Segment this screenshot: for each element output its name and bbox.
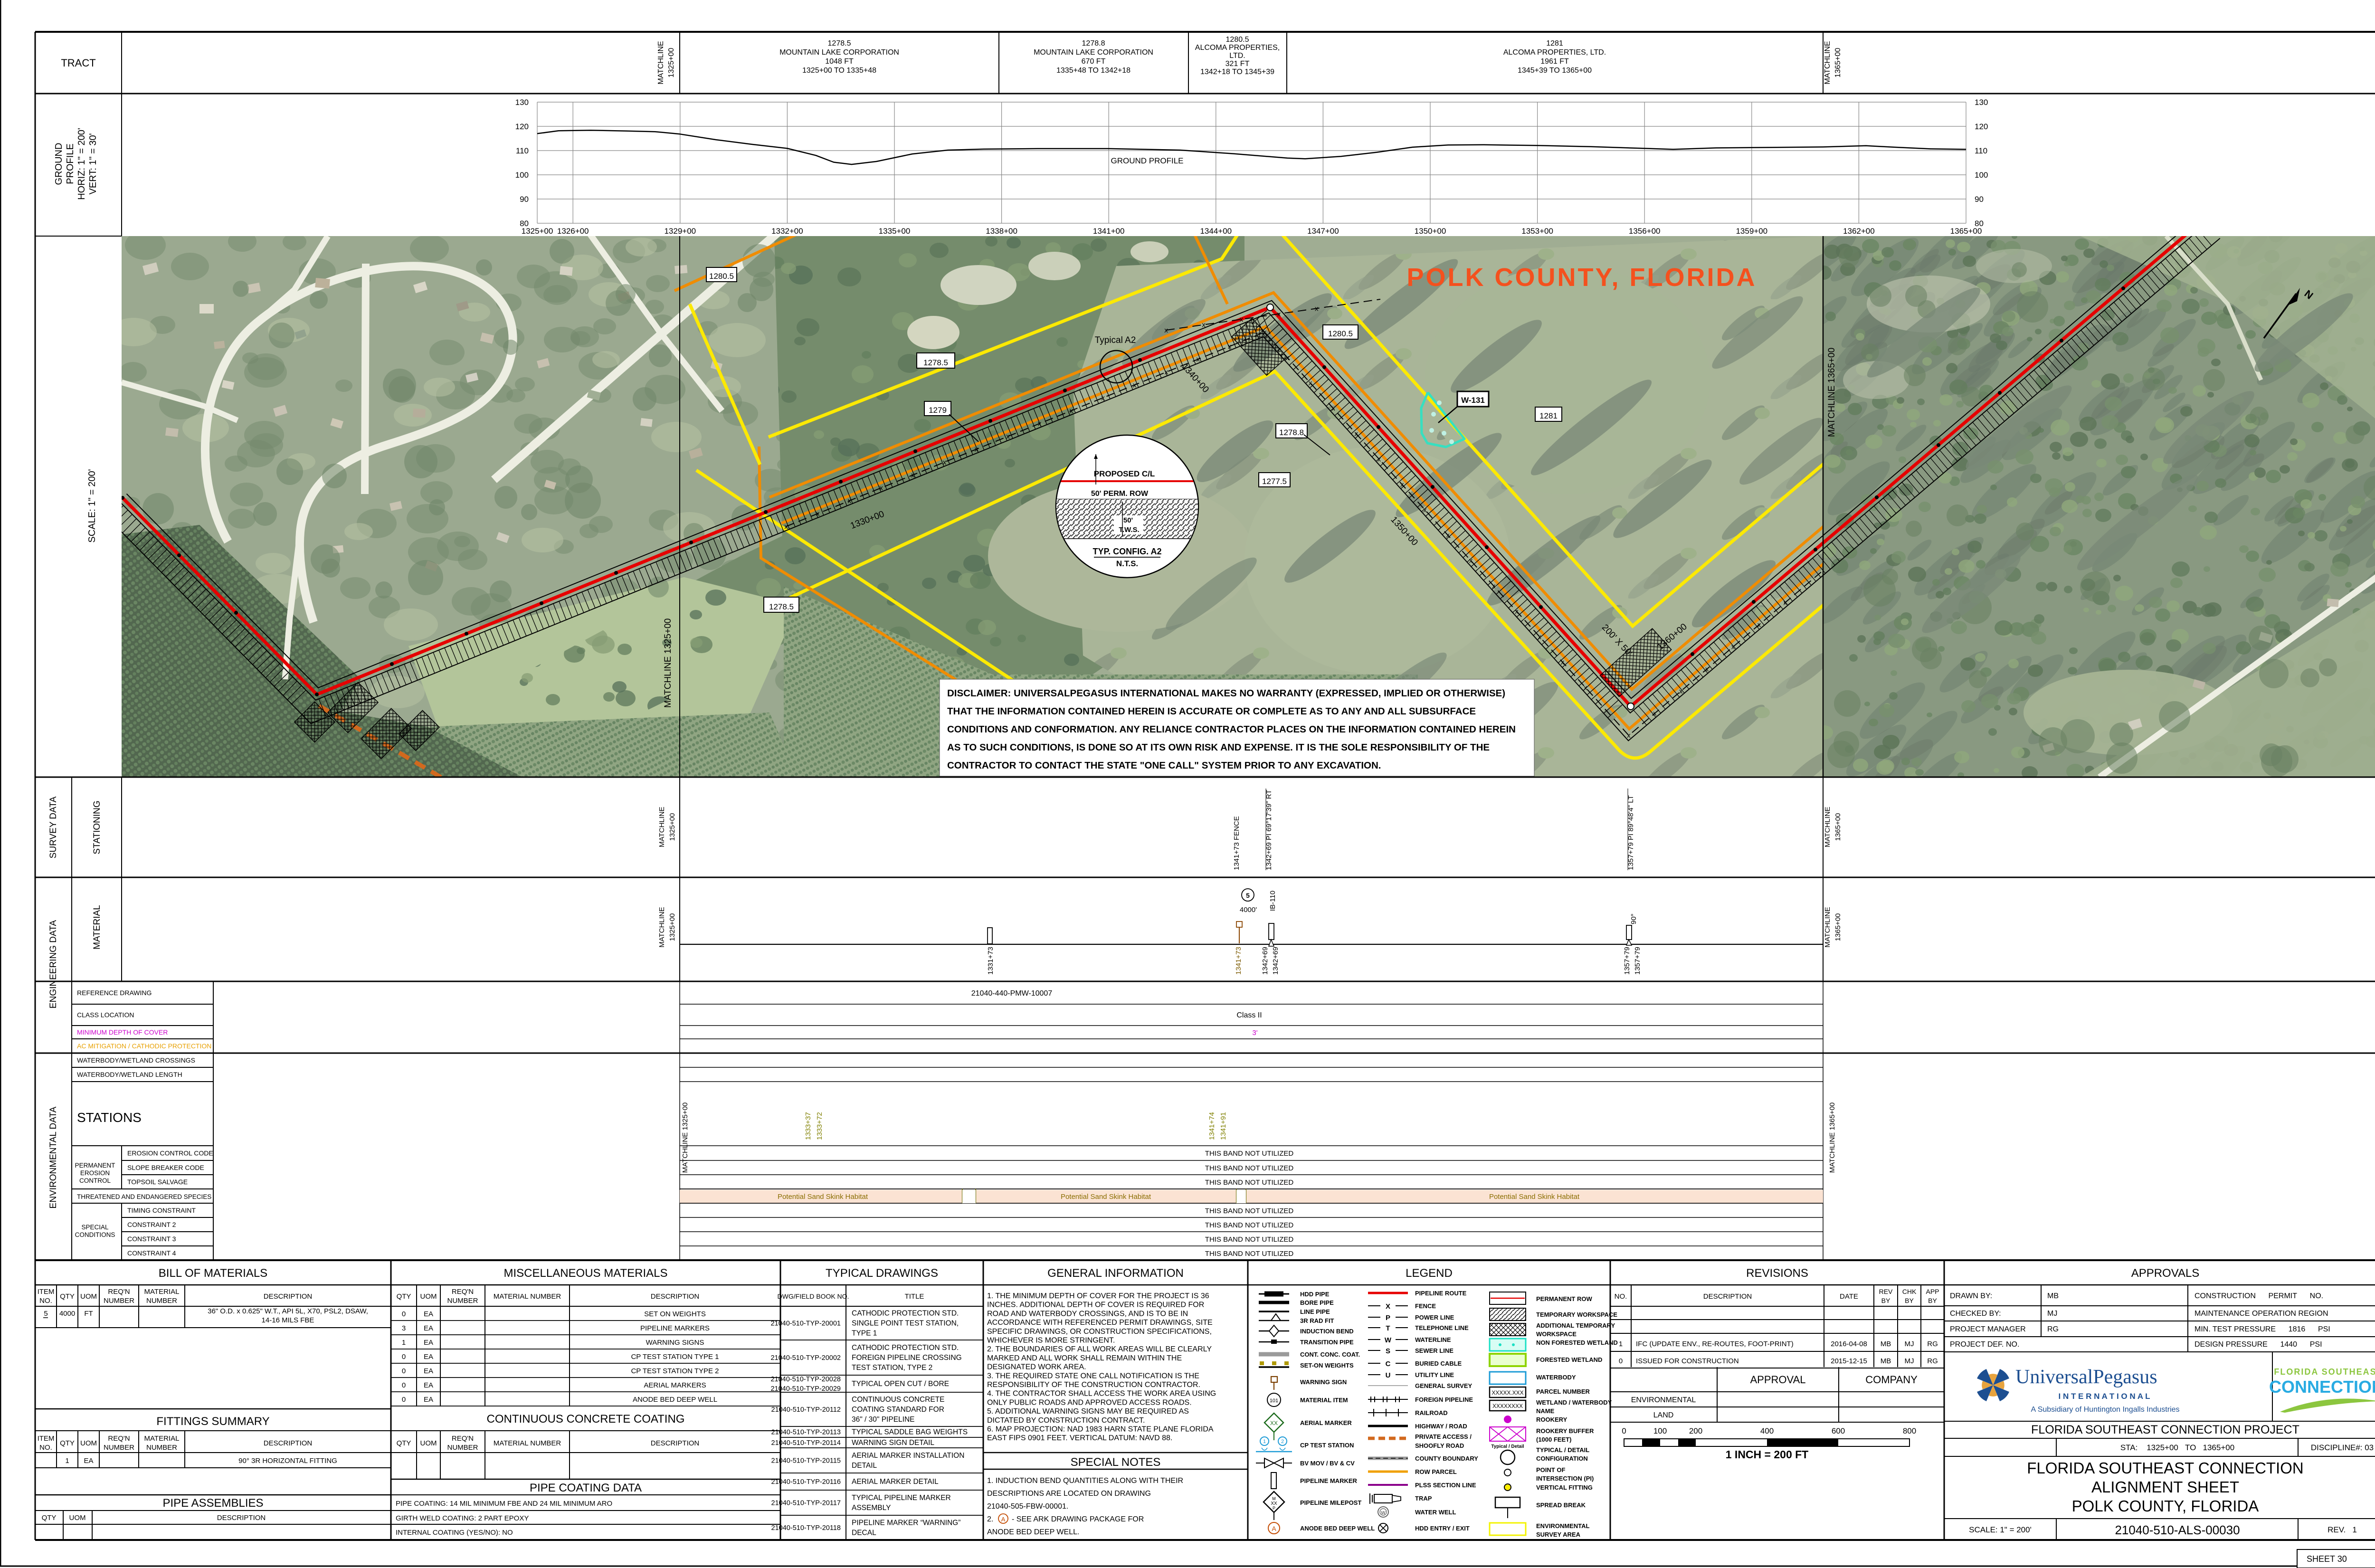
- svg-text:1362+00: 1362+00: [1843, 227, 1875, 236]
- svg-text:SEWER LINE: SEWER LINE: [1415, 1347, 1453, 1354]
- svg-text:DESCRIPTION: DESCRIPTION: [217, 1514, 266, 1522]
- svg-text:WARNING SIGNS: WARNING SIGNS: [646, 1339, 704, 1347]
- svg-text:A: A: [1272, 1525, 1276, 1532]
- svg-text:MISCELLANEOUS MATERIALS: MISCELLANEOUS MATERIALS: [504, 1267, 668, 1280]
- svg-text:x: x: [1164, 326, 1168, 334]
- svg-text:GROUND PROFILE: GROUND PROFILE: [1111, 156, 1183, 165]
- svg-text:EA: EA: [424, 1381, 433, 1389]
- svg-text:AERIAL MARKERS: AERIAL MARKERS: [644, 1381, 706, 1389]
- svg-text:1329+00: 1329+00: [664, 227, 696, 236]
- svg-text:x: x: [1515, 608, 1519, 616]
- svg-text:HORIZ: 1" = 200': HORIZ: 1" = 200': [76, 128, 87, 200]
- svg-text:WARNING SIGN: WARNING SIGN: [1300, 1378, 1347, 1386]
- svg-text:1341+73: 1341+73: [1235, 947, 1243, 975]
- svg-text:PIPE COATING: 14 MIL MINIMUM F: PIPE COATING: 14 MIL MINIMUM FBE AND 24 …: [396, 1500, 612, 1508]
- svg-text:T.W.S.: T.W.S.: [1119, 526, 1139, 534]
- svg-text:T: T: [1386, 1324, 1390, 1332]
- svg-text:ISSUED FOR CONSTRUCTION: ISSUED FOR CONSTRUCTION: [1636, 1357, 1739, 1365]
- svg-text:ITEM: ITEM: [38, 1435, 55, 1443]
- svg-text:x: x: [1070, 407, 1073, 415]
- svg-text:1342+69: 1342+69: [1272, 947, 1280, 975]
- svg-text:(1000 FEET): (1000 FEET): [1536, 1436, 1571, 1443]
- svg-text:0: 0: [1619, 1357, 1623, 1365]
- svg-text:x: x: [1165, 368, 1168, 376]
- svg-text:x: x: [1309, 379, 1312, 387]
- svg-text:MATCHLINE 1365+00: MATCHLINE 1365+00: [1828, 1102, 1836, 1173]
- svg-text:0: 0: [402, 1381, 406, 1389]
- svg-text:EA: EA: [84, 1457, 93, 1465]
- svg-text:EROSION: EROSION: [80, 1169, 110, 1177]
- svg-text:FITTINGS SUMMARY: FITTINGS SUMMARY: [156, 1415, 269, 1428]
- svg-text:WORKSPACE: WORKSPACE: [1536, 1330, 1577, 1338]
- svg-text:21040-505-FBW-00001.: 21040-505-FBW-00001.: [987, 1502, 1068, 1511]
- svg-text:REFERENCE DRAWING: REFERENCE DRAWING: [77, 989, 152, 997]
- svg-text:AS TO SUCH CONDITIONS, IS DONE: AS TO SUCH CONDITIONS, IS DONE SO AT ITS…: [947, 742, 1490, 753]
- svg-text:1365+00: 1365+00: [1834, 48, 1842, 78]
- svg-text:800: 800: [1903, 1426, 1916, 1435]
- svg-text:PIPE ASSEMBLIES: PIPE ASSEMBLIES: [162, 1497, 263, 1510]
- svg-text:1325+00 TO 1335+48: 1325+00 TO 1335+48: [802, 67, 876, 75]
- svg-text:21040-510-TYP-20001: 21040-510-TYP-20001: [770, 1320, 841, 1328]
- svg-text:2. THE BOUNDARIES OF ALL WORK: 2. THE BOUNDARIES OF ALL WORK AREAS WILL…: [987, 1345, 1212, 1353]
- svg-text:x: x: [911, 471, 915, 479]
- svg-text:CONTINUOUS CONCRETE: CONTINUOUS CONCRETE: [852, 1396, 944, 1404]
- svg-text:90°: 90°: [1630, 913, 1638, 924]
- svg-text:x: x: [1705, 665, 1709, 673]
- svg-text:SURVEY DATA: SURVEY DATA: [48, 796, 58, 858]
- svg-text:0: 0: [402, 1367, 406, 1375]
- svg-text:WATERBODY/WETLAND LENGTH: WATERBODY/WETLAND LENGTH: [77, 1071, 182, 1078]
- svg-text:TRAP: TRAP: [1415, 1495, 1432, 1502]
- svg-text:MATCHLINE: MATCHLINE: [1824, 907, 1832, 948]
- svg-text:90: 90: [1975, 195, 1984, 204]
- svg-text:100: 100: [1653, 1426, 1667, 1435]
- svg-text:NON FORESTED WETLAND: NON FORESTED WETLAND: [1536, 1339, 1618, 1346]
- svg-text:XXXXX.XXX: XXXXX.XXX: [1491, 1389, 1523, 1396]
- svg-text:PROJECT DEF. NO.: PROJECT DEF. NO.: [1950, 1340, 2019, 1349]
- svg-text:ROAD AND WATERBODY CROSSINGS,: ROAD AND WATERBODY CROSSINGS, AND IS TO …: [987, 1310, 1188, 1318]
- svg-text:1338+00: 1338+00: [986, 227, 1017, 236]
- svg-text:TYPE 1: TYPE 1: [852, 1330, 877, 1338]
- svg-text:SCALE: 1" = 200': SCALE: 1" = 200': [87, 469, 97, 543]
- svg-text:LTD.: LTD.: [1229, 52, 1245, 60]
- svg-text:100: 100: [515, 171, 529, 180]
- svg-text:MATCHLINE: MATCHLINE: [658, 807, 666, 847]
- svg-text:AC MITIGATION / CATHODIC PROTE: AC MITIGATION / CATHODIC PROTECTION: [77, 1042, 211, 1050]
- svg-text:MB: MB: [1881, 1340, 1891, 1348]
- svg-text:14-16 MILS FBE: 14-16 MILS FBE: [262, 1316, 314, 1324]
- svg-text:1278.5: 1278.5: [828, 39, 851, 48]
- svg-text:DESCRIPTION: DESCRIPTION: [264, 1439, 313, 1447]
- svg-text:400: 400: [1760, 1426, 1774, 1435]
- svg-text:ANODE BED DEEP WELL.: ANODE BED DEEP WELL.: [987, 1528, 1079, 1536]
- svg-text:1325+00: 1325+00: [668, 913, 676, 941]
- svg-text:MAINTENANCE OPERATION REGION: MAINTENANCE OPERATION REGION: [2194, 1310, 2328, 1318]
- svg-text:LEGEND: LEGEND: [1406, 1267, 1453, 1280]
- svg-text:x: x: [1133, 381, 1137, 389]
- svg-text:ADDITIONAL TEMPORARY: ADDITIONAL TEMPORARY: [1536, 1322, 1615, 1329]
- svg-text:DESCRIPTION: DESCRIPTION: [1703, 1292, 1752, 1301]
- svg-text:BY: BY: [1905, 1297, 1914, 1304]
- svg-text:Class II: Class II: [1236, 1011, 1262, 1019]
- svg-text:1341+73 FENCE: 1341+73 FENCE: [1233, 816, 1241, 870]
- svg-text:NO.: NO.: [39, 1444, 52, 1452]
- svg-text:EA: EA: [424, 1396, 433, 1404]
- svg-text:Typical / Detail: Typical / Detail: [1491, 1444, 1524, 1449]
- svg-text:x: x: [1006, 433, 1010, 441]
- svg-text:NAME: NAME: [1536, 1407, 1555, 1415]
- svg-text:QTY: QTY: [397, 1292, 411, 1301]
- svg-text:2.: 2.: [987, 1515, 993, 1523]
- svg-text:X: X: [1386, 1302, 1390, 1311]
- svg-text:COATING STANDARD FOR: COATING STANDARD FOR: [852, 1406, 944, 1414]
- svg-text:FLORIDA SOUTHEAST CONNECTION P: FLORIDA SOUTHEAST CONNECTION PROJECT: [2031, 1423, 2299, 1436]
- svg-text:DESIGN PRESSURE 1440: DESIGN PRESSURE 1440 PSI: [2194, 1340, 2322, 1349]
- svg-text:APP: APP: [1926, 1288, 1939, 1295]
- svg-text:POLK COUNTY, FLORIDA: POLK COUNTY, FLORIDA: [2072, 1497, 2259, 1515]
- svg-text:POINT OF: POINT OF: [1536, 1466, 1565, 1473]
- svg-text:THREATENED AND ENDANGERED SPEC: THREATENED AND ENDANGERED SPECIES: [77, 1193, 211, 1200]
- svg-text:ANODE BED DEEP WELL: ANODE BED DEEP WELL: [1300, 1525, 1375, 1532]
- svg-text:4000': 4000': [1240, 906, 1257, 914]
- svg-text:MATERIAL NUMBER: MATERIAL NUMBER: [494, 1439, 561, 1447]
- svg-text:UOM: UOM: [420, 1292, 437, 1301]
- svg-text:1341+74: 1341+74: [1208, 1112, 1216, 1140]
- svg-text:Potential Sand Skink Habitat: Potential Sand Skink Habitat: [1061, 1193, 1151, 1201]
- svg-text:NUMBER: NUMBER: [104, 1297, 134, 1305]
- svg-text:ANODE BED DEEP WELL: ANODE BED DEEP WELL: [633, 1396, 717, 1404]
- svg-text:5: 5: [1246, 892, 1250, 899]
- svg-text:CONTROL: CONTROL: [79, 1177, 111, 1184]
- svg-text:UOM: UOM: [80, 1292, 97, 1301]
- svg-text:CLASS LOCATION: CLASS LOCATION: [77, 1011, 134, 1019]
- svg-text:1332+00: 1332+00: [771, 227, 803, 236]
- svg-text:MATERIAL ITEM: MATERIAL ITEM: [1300, 1397, 1348, 1404]
- svg-text:36" / 30" PIPELINE: 36" / 30" PIPELINE: [852, 1416, 915, 1424]
- svg-text:0: 0: [1622, 1426, 1626, 1435]
- svg-text:1350+00: 1350+00: [1415, 227, 1446, 236]
- svg-text:1 INCH = 200 FT: 1 INCH = 200 FT: [1726, 1448, 1808, 1461]
- svg-text:EA: EA: [424, 1324, 433, 1332]
- svg-text:PIPELINE MARKERS: PIPELINE MARKERS: [640, 1324, 710, 1332]
- svg-text:CHECKED BY:: CHECKED BY:: [1950, 1310, 2001, 1318]
- svg-text:200: 200: [1689, 1426, 1702, 1435]
- svg-text:APPROVALS: APPROVALS: [2131, 1267, 2200, 1280]
- svg-text:21040-510-TYP-20113: 21040-510-TYP-20113: [771, 1429, 841, 1436]
- svg-text:21040-510-TYP-20116: 21040-510-TYP-20116: [771, 1478, 841, 1486]
- svg-text:LAND: LAND: [1653, 1411, 1674, 1419]
- svg-text:21040-510-TYP-20117: 21040-510-TYP-20117: [771, 1500, 841, 1507]
- svg-text:THAT THE INFORMATION CONTAINED: THAT THE INFORMATION CONTAINED HEREIN IS…: [947, 706, 1476, 717]
- svg-text:A: A: [1001, 1516, 1006, 1523]
- svg-text:QTY: QTY: [397, 1439, 411, 1447]
- svg-text:MATCHLINE: MATCHLINE: [1824, 807, 1832, 847]
- svg-text:x: x: [1584, 684, 1587, 692]
- svg-text:1333+37: 1333+37: [804, 1112, 812, 1140]
- svg-text:1325+00: 1325+00: [522, 227, 553, 236]
- svg-text:PERMANENT: PERMANENT: [75, 1162, 115, 1169]
- svg-text:1279: 1279: [929, 406, 947, 415]
- svg-text:EA: EA: [424, 1339, 433, 1347]
- svg-text:TYP. CONFIG. A2: TYP. CONFIG. A2: [1092, 547, 1161, 556]
- svg-text:UniversalPegasus: UniversalPegasus: [2015, 1366, 2157, 1388]
- svg-text:NO.: NO.: [39, 1297, 52, 1305]
- svg-text:U: U: [1386, 1371, 1391, 1379]
- svg-text:SPECIFIC DRAWINGS, OR CONSTRUC: SPECIFIC DRAWINGS, OR CONSTRUCTION SPECI…: [987, 1328, 1212, 1336]
- svg-text:TRANSITION PIPE: TRANSITION PIPE: [1300, 1339, 1354, 1346]
- svg-text:I N T E R N A T I O N A L: I N T E R N A T I O N A L: [2059, 1392, 2150, 1401]
- svg-text:EROSION CONTROL CODE: EROSION CONTROL CODE: [127, 1150, 213, 1157]
- svg-text:100: 100: [1975, 171, 1988, 180]
- svg-text:110: 110: [516, 146, 529, 155]
- svg-text:NUMBER: NUMBER: [447, 1297, 478, 1305]
- svg-text:XX: XX: [1270, 1420, 1278, 1426]
- svg-text:ALCOMA PROPERTIES,: ALCOMA PROPERTIES,: [1195, 44, 1280, 52]
- svg-text:INTERNAL COATING (YES/NO): NO: INTERNAL COATING (YES/NO): NO: [396, 1529, 513, 1537]
- svg-text:COUNTY BOUNDARY: COUNTY BOUNDARY: [1415, 1455, 1478, 1462]
- svg-text:21040-510-TYP-20118: 21040-510-TYP-20118: [771, 1524, 841, 1532]
- svg-text:x: x: [1240, 315, 1244, 323]
- svg-text:CONSTRUCTION PERMIT: CONSTRUCTION PERMIT NO.: [2194, 1292, 2323, 1300]
- svg-text:LINE PIPE: LINE PIPE: [1300, 1308, 1330, 1315]
- svg-text:DESCRIPTION: DESCRIPTION: [651, 1439, 700, 1447]
- svg-text:50': 50': [1123, 516, 1133, 524]
- svg-text:1278.5: 1278.5: [769, 602, 794, 611]
- svg-text:RAILROAD: RAILROAD: [1415, 1409, 1448, 1416]
- svg-text:PROPOSED C/L: PROPOSED C/L: [1094, 469, 1155, 478]
- svg-text:DECAL: DECAL: [852, 1529, 876, 1537]
- svg-text:ACCORDANCE WITH REFERENCED PER: ACCORDANCE WITH REFERENCED PERMIT DRAWIN…: [987, 1319, 1213, 1327]
- svg-text:THIS BAND NOT UTILIZED: THIS BAND NOT UTILIZED: [1205, 1250, 1294, 1258]
- svg-text:ASSEMBLY: ASSEMBLY: [852, 1504, 891, 1512]
- svg-text:MATERIAL: MATERIAL: [144, 1435, 180, 1443]
- svg-text:POWER LINE: POWER LINE: [1415, 1314, 1454, 1321]
- svg-text:1281: 1281: [1539, 411, 1558, 420]
- svg-text:PIPELINE MARKER “WARNING”: PIPELINE MARKER “WARNING”: [852, 1519, 960, 1527]
- svg-text:1326+00: 1326+00: [557, 227, 589, 236]
- svg-text:ROOKERY: ROOKERY: [1536, 1416, 1567, 1423]
- svg-text:ALCOMA PROPERTIES, LTD.: ALCOMA PROPERTIES, LTD.: [1503, 48, 1606, 57]
- svg-text:DWG/FIELD BOOK NO.: DWG/FIELD BOOK NO.: [778, 1292, 849, 1300]
- svg-text:MB: MB: [1881, 1357, 1891, 1365]
- svg-text:UTILITY LINE: UTILITY LINE: [1415, 1371, 1454, 1378]
- svg-text:321 FT: 321 FT: [1225, 60, 1250, 68]
- svg-text:BURIED CABLE: BURIED CABLE: [1415, 1360, 1462, 1367]
- svg-text:EAST FIPS 0901 FEET. VERTICAL: EAST FIPS 0901 FEET. VERTICAL DATUM: NAV…: [987, 1434, 1172, 1442]
- svg-text:FENCE: FENCE: [1415, 1302, 1436, 1310]
- svg-text:x: x: [1101, 394, 1105, 402]
- svg-text:SURVEY AREA: SURVEY AREA: [1536, 1531, 1581, 1538]
- svg-text:CATHODIC PROTECTION STD.: CATHODIC PROTECTION STD.: [852, 1310, 959, 1318]
- svg-text:5: 5: [44, 1310, 47, 1318]
- svg-text:SLOPE BREAKER CODE: SLOPE BREAKER CODE: [127, 1164, 204, 1171]
- svg-text:90° 3R HORIZONTAL FITTING: 90° 3R HORIZONTAL FITTING: [238, 1457, 337, 1465]
- svg-text:THIS BAND NOT UTILIZED: THIS BAND NOT UTILIZED: [1205, 1235, 1294, 1244]
- svg-text:x: x: [848, 497, 852, 505]
- svg-text:SET-ON WEIGHTS: SET-ON WEIGHTS: [1300, 1362, 1354, 1369]
- svg-text:x: x: [1653, 710, 1657, 718]
- svg-text:W-131: W-131: [1461, 396, 1485, 405]
- svg-text:MATERIAL: MATERIAL: [144, 1288, 180, 1296]
- svg-text:BILL OF MATERIALS: BILL OF MATERIALS: [159, 1267, 267, 1280]
- svg-text:1342+18 TO 1345+39: 1342+18 TO 1345+39: [1200, 68, 1274, 76]
- svg-text:101: 101: [1270, 1398, 1278, 1404]
- svg-text:NO.: NO.: [1615, 1292, 1627, 1301]
- svg-text:1325+00: 1325+00: [667, 48, 675, 78]
- svg-text:WARNING SIGN DETAIL: WARNING SIGN DETAIL: [852, 1439, 934, 1447]
- svg-text:PROJECT MANAGER: PROJECT MANAGER: [1950, 1325, 2026, 1333]
- svg-text:M: M: [1272, 1496, 1276, 1501]
- svg-text:CONSTRAINT 3: CONSTRAINT 3: [127, 1235, 176, 1243]
- svg-text:CONTINUOUS CONCRETE COATING: CONTINUOUS CONCRETE COATING: [487, 1413, 685, 1425]
- svg-text:DRAWN BY:: DRAWN BY:: [1950, 1292, 1992, 1300]
- svg-text:WETLAND / WATERBODY: WETLAND / WATERBODY: [1536, 1399, 1612, 1406]
- svg-text:CHK: CHK: [1902, 1288, 1917, 1295]
- svg-text:MARKED AND ALL WORK SHALL REMA: MARKED AND ALL WORK SHALL REMAIN WITHIN …: [987, 1354, 1182, 1362]
- svg-text:3: 3: [402, 1324, 406, 1332]
- svg-text:1: 1: [402, 1339, 406, 1347]
- svg-text:x: x: [1492, 582, 1496, 590]
- svg-text:21040-510-ALS-00030: 21040-510-ALS-00030: [2115, 1523, 2240, 1537]
- svg-text:REQ'N: REQ'N: [452, 1288, 474, 1296]
- svg-text:STATIONS: STATIONS: [77, 1110, 142, 1125]
- svg-text:C: C: [1386, 1360, 1391, 1368]
- svg-text:RG: RG: [1927, 1340, 1938, 1348]
- svg-text:APPROVAL: APPROVAL: [1750, 1374, 1806, 1386]
- svg-text:1335+48 TO 1342+18: 1335+48 TO 1342+18: [1056, 67, 1130, 75]
- svg-text:x: x: [1038, 420, 1042, 428]
- svg-text:TYPICAL PIPELINE MARKER: TYPICAL PIPELINE MARKER: [852, 1494, 951, 1502]
- svg-text:TITLE: TITLE: [905, 1292, 924, 1301]
- svg-text:ENGINEERING DATA: ENGINEERING DATA: [48, 920, 58, 1008]
- svg-text:MATERIAL: MATERIAL: [92, 905, 102, 950]
- svg-text:x: x: [1400, 481, 1404, 489]
- svg-text:PROFILE: PROFILE: [65, 143, 76, 184]
- svg-text:1333+72: 1333+72: [816, 1112, 824, 1140]
- svg-text:BY: BY: [1881, 1297, 1890, 1304]
- svg-text:PIPELINE MILEPOST: PIPELINE MILEPOST: [1300, 1499, 1361, 1506]
- svg-text:INDUCTION BEND: INDUCTION BEND: [1300, 1328, 1354, 1335]
- svg-text:PIPELINE ROUTE: PIPELINE ROUTE: [1415, 1290, 1467, 1297]
- svg-text:SINGLE POINT TEST STATION,: SINGLE POINT TEST STATION,: [852, 1320, 959, 1328]
- svg-text:x: x: [1202, 321, 1206, 329]
- svg-text:EA: EA: [424, 1310, 433, 1318]
- svg-text:INTERSECTION (PI): INTERSECTION (PI): [1536, 1475, 1594, 1482]
- svg-text:1325+00: 1325+00: [668, 813, 676, 841]
- svg-text:P: P: [1273, 1506, 1275, 1511]
- svg-text:UOM: UOM: [69, 1514, 86, 1522]
- svg-text:ROOKERY BUFFER: ROOKERY BUFFER: [1536, 1427, 1594, 1435]
- svg-text:GROUND: GROUND: [54, 143, 64, 185]
- svg-text:x: x: [816, 510, 820, 518]
- svg-text:FORESTED WETLAND: FORESTED WETLAND: [1536, 1356, 1602, 1363]
- svg-text:GENERAL SURVEY: GENERAL SURVEY: [1415, 1382, 1472, 1389]
- svg-text:COMPANY: COMPANY: [1865, 1374, 1918, 1386]
- svg-text:TEMPORARY WORKSPACE: TEMPORARY WORKSPACE: [1536, 1311, 1617, 1318]
- svg-text:x: x: [1757, 621, 1761, 629]
- svg-text:6. MAP PROJECTION: NAD 1983 H: 6. MAP PROJECTION: NAD 1983 HARN STATE P…: [987, 1425, 1214, 1434]
- svg-text:130: 130: [1975, 98, 1988, 107]
- svg-text:TELEPHONE LINE: TELEPHONE LINE: [1415, 1324, 1469, 1331]
- svg-text:3': 3': [1252, 1029, 1257, 1037]
- svg-text:ENVIRONMENTAL: ENVIRONMENTAL: [1631, 1396, 1696, 1404]
- svg-text:CATHODIC PROTECTION STD.: CATHODIC PROTECTION STD.: [852, 1344, 959, 1352]
- svg-text:SET ON WEIGHTS: SET ON WEIGHTS: [644, 1310, 706, 1318]
- svg-text:1281: 1281: [1546, 39, 1563, 48]
- svg-text:DISCIPLINE#: 03: DISCIPLINE#: 03: [2311, 1443, 2374, 1452]
- svg-text:VERTICAL FITTING: VERTICAL FITTING: [1536, 1484, 1593, 1491]
- svg-text:WHICHEVER IS MORE STRINGENT.: WHICHEVER IS MORE STRINGENT.: [987, 1337, 1115, 1345]
- svg-text:1. THE MINIMUM DEPTH OF COVER: 1. THE MINIMUM DEPTH OF COVER FOR THE PR…: [987, 1292, 1209, 1300]
- svg-text:DESCRIPTIONS ARE LOCATED ON DR: DESCRIPTIONS ARE LOCATED ON DRAWING: [987, 1490, 1151, 1498]
- svg-text:1345+39 TO 1365+00: 1345+39 TO 1365+00: [1518, 67, 1592, 75]
- svg-text:21040-510-TYP-20112: 21040-510-TYP-20112: [771, 1406, 841, 1414]
- svg-text:x: x: [879, 484, 883, 492]
- svg-text:RG: RG: [1927, 1357, 1938, 1365]
- svg-text:MOUNTAIN LAKE CORPORATION: MOUNTAIN LAKE CORPORATION: [779, 48, 899, 57]
- svg-text:1357+79: 1357+79: [1634, 947, 1642, 975]
- svg-text:BV MOV / BV & CV: BV MOV / BV & CV: [1300, 1460, 1355, 1467]
- svg-text:NUMBER: NUMBER: [447, 1444, 478, 1452]
- svg-text:BORE PIPE: BORE PIPE: [1300, 1299, 1334, 1306]
- svg-text:x: x: [1315, 304, 1319, 313]
- svg-text:EA: EA: [424, 1367, 433, 1375]
- svg-text:CONT. CONC. COAT.: CONT. CONC. COAT.: [1300, 1351, 1360, 1358]
- svg-text:A Subsidiary of Huntington Ing: A Subsidiary of Huntington Ingalls Indus…: [2031, 1406, 2179, 1414]
- svg-text:1357+79: 1357+79: [1623, 947, 1631, 975]
- svg-text:FOREIGN PIPELINE: FOREIGN PIPELINE: [1415, 1396, 1473, 1403]
- svg-text:QTY: QTY: [60, 1439, 75, 1447]
- svg-text:1357+79 PI 89°48'4" LT: 1357+79 PI 89°48'4" LT: [1627, 795, 1635, 870]
- svg-text:MATCHLINE: MATCHLINE: [658, 907, 666, 948]
- svg-text:1277.5: 1277.5: [1262, 477, 1287, 486]
- svg-text:AERIAL MARKER DETAIL: AERIAL MARKER DETAIL: [852, 1478, 939, 1486]
- svg-text:x: x: [943, 458, 947, 466]
- svg-text:THIS BAND NOT UTILIZED: THIS BAND NOT UTILIZED: [1205, 1178, 1294, 1187]
- svg-text:NUMBER: NUMBER: [146, 1297, 177, 1305]
- svg-text:MIN. TEST PRESSURE 1816: MIN. TEST PRESSURE 1816 PSI: [2194, 1325, 2330, 1333]
- svg-text:1278.5: 1278.5: [923, 358, 948, 367]
- svg-text:MATCHLINE: MATCHLINE: [657, 41, 665, 84]
- svg-text:NUMBER: NUMBER: [104, 1444, 134, 1452]
- svg-text:FT: FT: [84, 1310, 93, 1318]
- svg-text:MOUNTAIN LAKE CORPORATION: MOUNTAIN LAKE CORPORATION: [1034, 48, 1153, 57]
- svg-text:BY: BY: [1928, 1297, 1937, 1304]
- svg-text:36" O.D. x 0.625" W.T., API 5L: 36" O.D. x 0.625" W.T., API 5L, X70, PSL…: [208, 1307, 368, 1315]
- svg-text:WATER WELL: WATER WELL: [1415, 1509, 1456, 1516]
- svg-text:QTY: QTY: [42, 1514, 57, 1522]
- svg-text:x: x: [975, 446, 978, 454]
- svg-text:120: 120: [515, 122, 529, 131]
- svg-text:CONFIGURATION: CONFIGURATION: [1536, 1455, 1588, 1462]
- svg-text:THIS BAND NOT UTILIZED: THIS BAND NOT UTILIZED: [1205, 1207, 1294, 1215]
- svg-text:CONDITIONS: CONDITIONS: [75, 1231, 115, 1238]
- svg-text:AERIAL MARKER INSTALLATION: AERIAL MARKER INSTALLATION: [852, 1452, 964, 1460]
- svg-text:FOREIGN PIPELINE CROSSING: FOREIGN PIPELINE CROSSING: [852, 1354, 962, 1362]
- svg-text:120: 120: [1975, 122, 1988, 131]
- svg-text:W: W: [1381, 1511, 1386, 1516]
- svg-text:TRACT: TRACT: [61, 57, 95, 69]
- svg-text:4. THE CONTRACTOR SHALL ACCES: 4. THE CONTRACTOR SHALL ACCESS THE WORK …: [987, 1390, 1216, 1398]
- svg-text:130: 130: [515, 98, 529, 107]
- svg-text:SPECIAL NOTES: SPECIAL NOTES: [1071, 1456, 1161, 1469]
- svg-text:1344+00: 1344+00: [1200, 227, 1232, 236]
- svg-text:5. ADDITIONAL WARNING SIGNS M: 5. ADDITIONAL WARNING SIGNS MAY BE REQUI…: [987, 1407, 1189, 1416]
- svg-text:HDD PIPE: HDD PIPE: [1300, 1291, 1330, 1298]
- svg-text:1280.5: 1280.5: [1226, 36, 1249, 44]
- svg-text:IFC (UPDATE ENV., RE-ROUTES, F: IFC (UPDATE ENV., RE-ROUTES, FOOT-PRINT): [1636, 1340, 1794, 1348]
- svg-text:50' PERM. ROW: 50' PERM. ROW: [1091, 490, 1149, 498]
